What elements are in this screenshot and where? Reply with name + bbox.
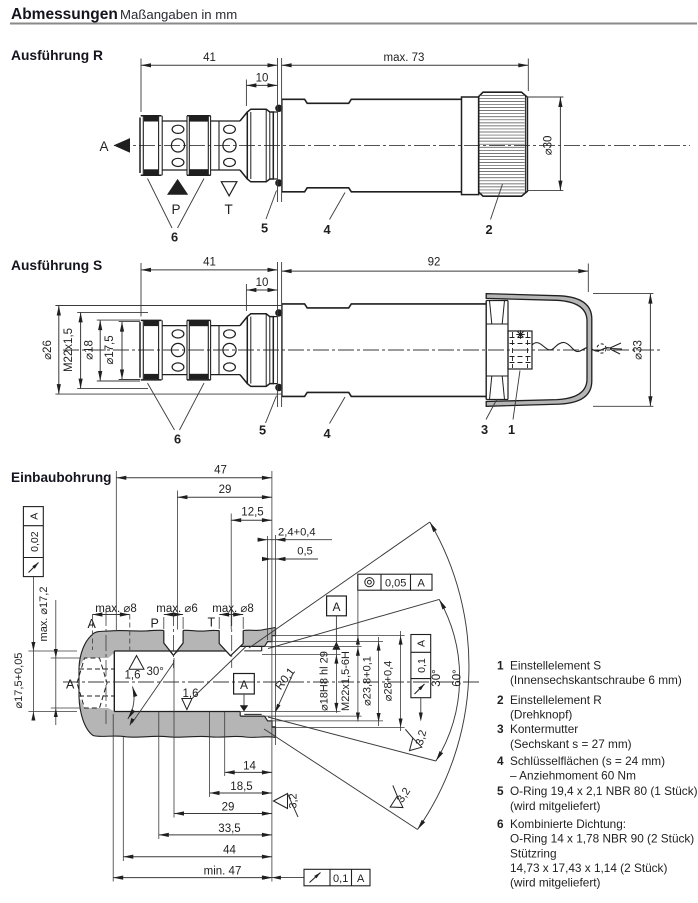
svg-text:⌀18: ⌀18 <box>84 340 96 360</box>
svg-text:5: 5 <box>497 784 504 798</box>
svg-text:1: 1 <box>497 658 504 672</box>
svg-text:47: 47 <box>214 465 227 477</box>
svg-text:O-Ring 19,4 x 2,1 NBR 80 (1 St: O-Ring 19,4 x 2,1 NBR 80 (1 Stück) <box>510 784 698 798</box>
svg-text:14,73 x 17,43 x 1,14 (2 Stück): 14,73 x 17,43 x 1,14 (2 Stück) <box>510 861 667 875</box>
svg-text:30°: 30° <box>431 669 443 686</box>
svg-text:Einstellelement S: Einstellelement S <box>510 658 601 672</box>
svg-text:29: 29 <box>222 802 235 814</box>
svg-text:1,6: 1,6 <box>125 670 141 682</box>
svg-text:12,5: 12,5 <box>241 507 263 519</box>
svg-text:M22x1,5: M22x1,5 <box>63 328 75 372</box>
svg-text:max. ⌀8: max. ⌀8 <box>212 603 253 615</box>
svg-text:0,1: 0,1 <box>333 873 348 885</box>
svg-text:(Innensechskantschraube 6 mm): (Innensechskantschraube 6 mm) <box>510 673 682 687</box>
svg-text:T: T <box>225 202 233 217</box>
svg-text:P: P <box>151 617 159 631</box>
svg-text:min. 47: min. 47 <box>204 866 242 878</box>
svg-text:Schlüsselflächen (s = 24 mm): Schlüsselflächen (s = 24 mm) <box>510 754 665 768</box>
svg-text:P: P <box>172 202 181 217</box>
svg-text:0,02: 0,02 <box>29 531 41 552</box>
svg-text:– Anziehmoment 60 Nm: – Anziehmoment 60 Nm <box>510 769 636 783</box>
svg-text:5: 5 <box>261 221 268 236</box>
svg-text:2: 2 <box>497 693 504 707</box>
svg-text:A: A <box>88 617 97 631</box>
svg-text:10: 10 <box>256 73 269 85</box>
svg-text:Einstellelement R: Einstellelement R <box>510 693 602 707</box>
svg-text:A: A <box>66 678 75 692</box>
svg-text:6: 6 <box>497 817 504 831</box>
svg-text:⌀17,5: ⌀17,5 <box>104 335 116 364</box>
svg-text:30°: 30° <box>147 666 164 678</box>
svg-text:60°: 60° <box>452 669 464 686</box>
svg-text:18,5: 18,5 <box>230 781 252 793</box>
svg-text:4: 4 <box>323 426 331 441</box>
svg-text:2: 2 <box>485 222 492 237</box>
svg-text:⌀30: ⌀30 <box>543 136 555 156</box>
svg-text:3: 3 <box>497 722 504 736</box>
svg-text:A: A <box>29 513 41 520</box>
svg-text:max. ⌀17,2: max. ⌀17,2 <box>38 587 50 642</box>
svg-text:6: 6 <box>174 432 181 447</box>
svg-text:⌀33: ⌀33 <box>633 340 645 360</box>
svg-text:⌀28+0,4: ⌀28+0,4 <box>383 661 395 702</box>
svg-text:Kombinierte Dichtung:: Kombinierte Dichtung: <box>510 817 626 831</box>
svg-text:14: 14 <box>243 761 256 773</box>
svg-text:0,5: 0,5 <box>297 546 313 558</box>
svg-text:A: A <box>240 678 248 692</box>
svg-text:Ausführung R: Ausführung R <box>11 48 103 63</box>
svg-text:0,1: 0,1 <box>416 658 428 673</box>
svg-text:29: 29 <box>219 484 232 496</box>
svg-text:3,2: 3,2 <box>288 793 300 808</box>
svg-text:A: A <box>357 873 365 885</box>
svg-text:5: 5 <box>259 423 266 438</box>
svg-text:4: 4 <box>323 222 331 237</box>
svg-text:Stützring: Stützring <box>510 846 557 860</box>
svg-text:Abmessungen: Abmessungen <box>11 6 118 23</box>
svg-text:(wird mitgeliefert): (wird mitgeliefert) <box>510 799 601 813</box>
svg-text:⌀17,5+0,05: ⌀17,5+0,05 <box>13 653 25 709</box>
svg-text:0,05: 0,05 <box>385 578 406 590</box>
svg-text:A: A <box>416 640 428 647</box>
svg-text:6: 6 <box>171 230 178 245</box>
svg-text:Maßangaben in mm: Maßangaben in mm <box>120 7 237 22</box>
svg-text:(wird mitgeliefert): (wird mitgeliefert) <box>510 876 601 890</box>
svg-text:1: 1 <box>508 422 515 437</box>
svg-text:Kontermutter: Kontermutter <box>510 722 578 736</box>
svg-text:⌀26: ⌀26 <box>42 340 54 360</box>
svg-text:44: 44 <box>223 845 236 857</box>
svg-text:O-Ring 14 x 1,78 NBR 90 (2 Stü: O-Ring 14 x 1,78 NBR 90 (2 Stück) <box>510 832 694 846</box>
svg-text:33,5: 33,5 <box>218 823 240 835</box>
svg-text:Ausführung S: Ausführung S <box>11 258 102 273</box>
svg-text:M22x1,5-6H: M22x1,5-6H <box>340 651 352 711</box>
svg-text:10: 10 <box>256 277 269 289</box>
svg-text:(Drehknopf): (Drehknopf) <box>510 708 572 722</box>
svg-text:⌀18H8 hl 29: ⌀18H8 hl 29 <box>319 651 331 711</box>
svg-text:(Sechskant s = 27 mm): (Sechskant s = 27 mm) <box>510 737 632 751</box>
svg-text:2,4+0,4: 2,4+0,4 <box>278 527 316 539</box>
svg-text:T: T <box>208 616 216 630</box>
svg-text:41: 41 <box>203 257 216 269</box>
svg-text:3: 3 <box>481 422 488 437</box>
svg-text:A: A <box>100 139 109 154</box>
svg-text:max. 73: max. 73 <box>384 52 425 64</box>
svg-text:⌀23,8+0,1: ⌀23,8+0,1 <box>362 656 374 706</box>
svg-text:A: A <box>332 600 340 614</box>
svg-text:4: 4 <box>497 754 504 768</box>
svg-text:Einbaubohrung: Einbaubohrung <box>11 470 111 485</box>
svg-text:41: 41 <box>203 52 216 64</box>
svg-text:A: A <box>418 578 426 590</box>
svg-text:max. ⌀6: max. ⌀6 <box>156 603 197 615</box>
svg-text:92: 92 <box>428 257 441 269</box>
